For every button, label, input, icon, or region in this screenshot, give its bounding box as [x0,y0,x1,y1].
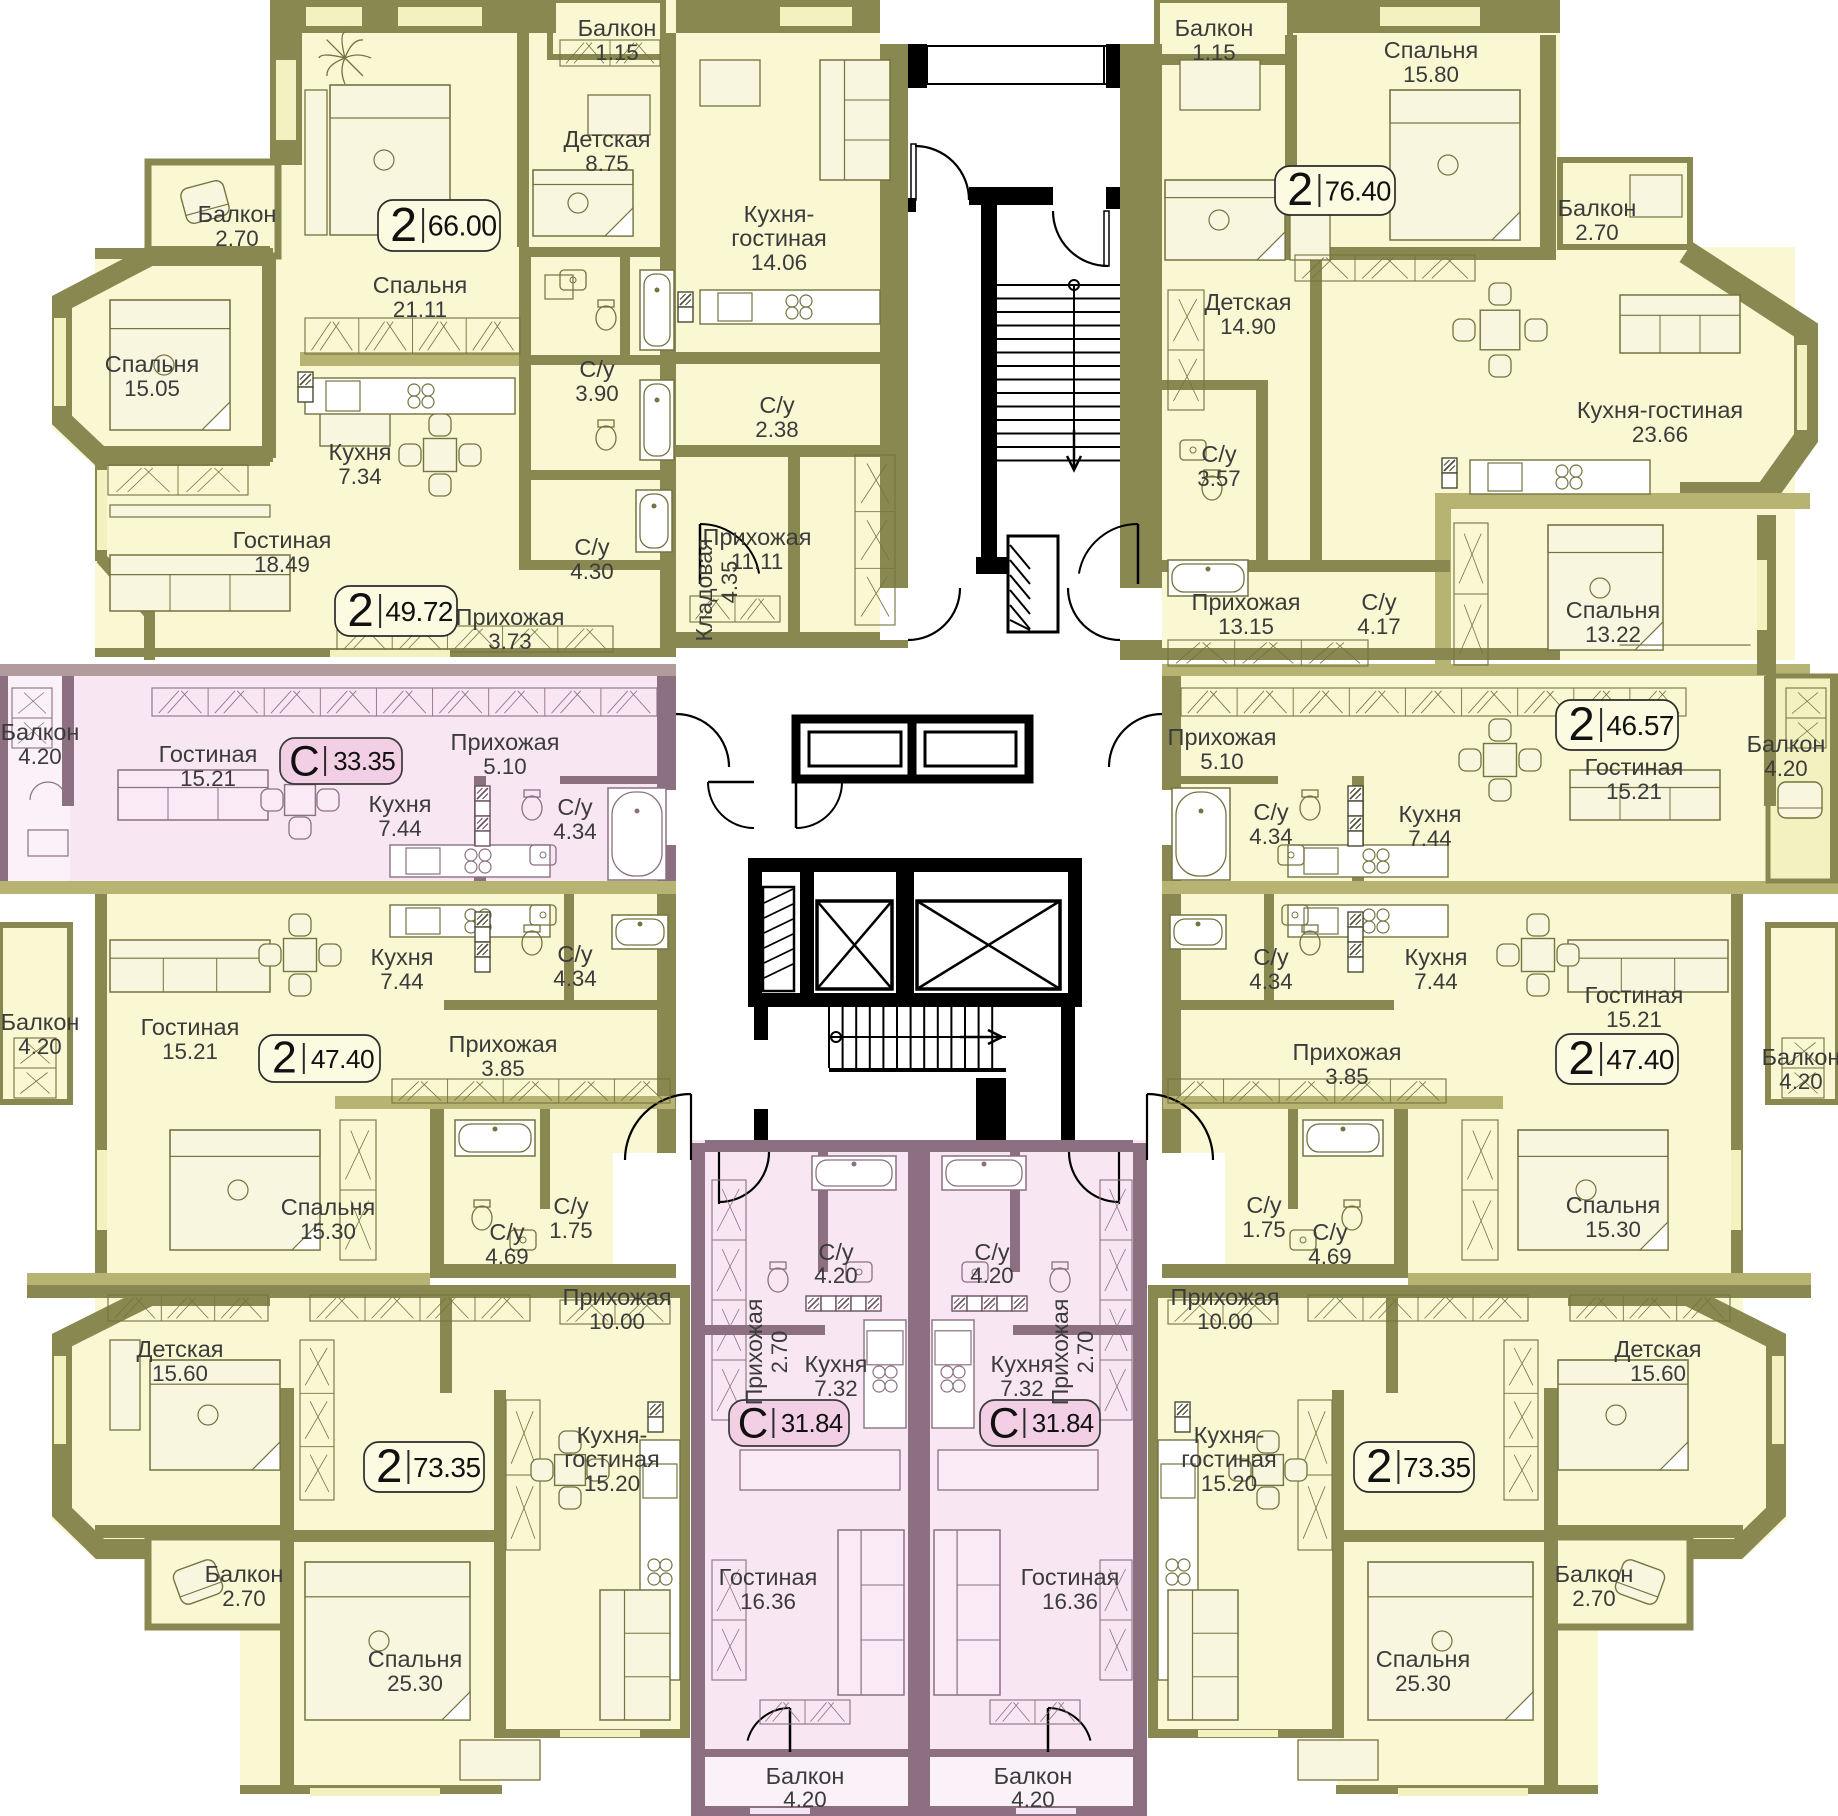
svg-text:Балкон: Балкон [1,719,80,745]
svg-text:3.73: 3.73 [488,629,531,654]
svg-text:Балкон: Балкон [1762,1044,1838,1070]
svg-text:Спальня: Спальня [368,1646,462,1672]
svg-text:Балкон: Балкон [578,15,657,41]
svg-text:С: С [289,738,320,785]
svg-text:16.36: 16.36 [740,1589,796,1614]
svg-text:47.40: 47.40 [1606,1044,1674,1075]
svg-text:21.11: 21.11 [393,297,447,322]
svg-text:Кухня: Кухня [1399,801,1462,827]
svg-text:15.60: 15.60 [1630,1361,1686,1386]
svg-text:25.30: 25.30 [387,1671,443,1696]
svg-text:13.15: 13.15 [1218,614,1274,639]
svg-text:Кухня: Кухня [329,439,392,465]
svg-text:15.20: 15.20 [1201,1471,1257,1496]
svg-text:Гостиная: Гостиная [1021,1564,1120,1590]
svg-text:гостиная: гостиная [564,1446,660,1472]
svg-text:Прихожая: Прихожая [456,604,565,630]
svg-text:8.75: 8.75 [585,151,628,176]
svg-text:Кладовая: Кладовая [691,538,717,641]
svg-text:Прихожая: Прихожая [563,1284,672,1310]
svg-text:С/у: С/у [1253,799,1289,825]
svg-text:Прихожая: Прихожая [1171,1284,1280,1310]
svg-text:4.34: 4.34 [1249,824,1292,849]
svg-text:Балкон: Балкон [1558,195,1637,221]
svg-text:Кухня: Кухня [1405,944,1468,970]
svg-text:С/у: С/у [1201,441,1237,467]
svg-text:7.32: 7.32 [814,1376,857,1401]
svg-text:13.22: 13.22 [1585,622,1641,647]
svg-text:4.30: 4.30 [570,559,613,584]
svg-text:Гостиная: Гостиная [159,741,258,767]
svg-text:Кухня: Кухня [991,1351,1054,1377]
svg-text:Гостиная: Гостиная [1585,754,1684,780]
svg-text:Балкон: Балкон [766,1763,845,1789]
svg-text:4.34: 4.34 [1249,969,1292,994]
svg-text:4.69: 4.69 [485,1244,528,1269]
svg-text:С/у: С/у [974,1239,1010,1265]
svg-text:76.40: 76.40 [1325,175,1391,206]
svg-text:1.15: 1.15 [1192,40,1235,65]
svg-text:С/у: С/у [553,1193,589,1219]
svg-text:С/у: С/у [759,392,795,418]
svg-text:4.20: 4.20 [783,1787,826,1812]
svg-text:10.00: 10.00 [589,1309,645,1334]
svg-text:Кухня: Кухня [369,791,432,817]
svg-text:С/у: С/у [1361,589,1397,615]
svg-text:3.85: 3.85 [1325,1064,1368,1089]
svg-text:Спальня: Спальня [281,1194,375,1220]
svg-text:Спальня: Спальня [1384,37,1478,63]
svg-text:2.70: 2.70 [1575,220,1618,245]
svg-text:15.30: 15.30 [1585,1217,1641,1242]
svg-text:7.44: 7.44 [380,969,423,994]
svg-text:2: 2 [390,198,417,252]
svg-text:Гостиная: Гостиная [719,1564,818,1590]
svg-text:15.21: 15.21 [1606,779,1662,804]
svg-text:Кухня-: Кухня- [744,201,815,227]
svg-text:5.10: 5.10 [1200,749,1243,774]
svg-text:С/у: С/у [557,941,593,967]
svg-text:4.20: 4.20 [1764,756,1807,781]
svg-text:С/у: С/у [557,794,593,820]
svg-text:66.00: 66.00 [428,211,497,243]
svg-text:Балкон: Балкон [198,201,277,227]
svg-text:Кухня: Кухня [371,944,434,970]
svg-text:Балкон: Балкон [1175,15,1254,41]
svg-text:4.69: 4.69 [1308,1244,1351,1269]
svg-text:Детская: Детская [1204,289,1291,315]
svg-text:4.34: 4.34 [553,819,596,844]
svg-text:31.84: 31.84 [781,1410,843,1438]
svg-text:15.20: 15.20 [584,1471,640,1496]
svg-text:Прихожая: Прихожая [451,729,560,755]
svg-text:С/у: С/у [574,534,610,560]
svg-text:С/у: С/у [1253,944,1289,970]
svg-text:Детская: Детская [563,126,650,152]
svg-text:гостиная: гостиная [731,225,827,251]
svg-text:Прихожая: Прихожая [703,524,812,550]
svg-text:С: С [989,1400,1020,1447]
svg-text:С: С [738,1400,769,1447]
svg-text:Прихожая: Прихожая [1293,1039,1402,1065]
svg-text:С/у: С/у [1246,1192,1282,1218]
svg-text:15.21: 15.21 [162,1039,218,1064]
svg-text:16.36: 16.36 [1042,1589,1098,1614]
svg-text:14.06: 14.06 [751,250,807,275]
svg-text:Кухня-: Кухня- [577,1422,648,1448]
svg-text:Кухня: Кухня [805,1351,868,1377]
svg-text:4.35: 4.35 [717,561,742,604]
svg-text:2.70: 2.70 [222,1586,265,1611]
svg-text:Спальня: Спальня [1376,1646,1470,1672]
svg-text:Спальня: Спальня [105,351,199,377]
svg-text:5.10: 5.10 [483,754,526,779]
svg-text:4.20: 4.20 [18,1034,61,1059]
svg-text:4.20: 4.20 [970,1263,1013,1288]
svg-text:Балкон: Балкон [994,1763,1073,1789]
svg-text:15.60: 15.60 [152,1361,208,1386]
svg-text:С/у: С/у [1312,1219,1348,1245]
svg-text:46.57: 46.57 [1606,710,1674,741]
svg-text:15.21: 15.21 [1606,1007,1662,1032]
svg-text:Балкон: Балкон [205,1561,284,1587]
svg-text:Прихожая: Прихожая [741,1299,767,1406]
svg-text:4.20: 4.20 [814,1263,857,1288]
svg-text:15.05: 15.05 [124,376,180,401]
svg-text:1.15: 1.15 [595,40,638,65]
svg-text:2.70: 2.70 [1073,1331,1098,1374]
svg-text:2.70: 2.70 [215,226,258,251]
svg-text:2.38: 2.38 [755,417,798,442]
svg-text:Прихожая: Прихожая [1192,589,1301,615]
svg-text:4.20: 4.20 [18,744,61,769]
svg-text:2.70: 2.70 [767,1331,792,1374]
svg-text:С/у: С/у [818,1239,854,1265]
svg-text:Детская: Детская [1614,1336,1701,1362]
svg-text:Балкон: Балкон [1747,731,1826,757]
svg-text:С/у: С/у [579,356,615,382]
svg-text:2: 2 [1568,1032,1594,1085]
svg-text:Спальня: Спальня [1566,1192,1660,1218]
svg-text:7.44: 7.44 [378,816,421,841]
svg-text:Балкон: Балкон [1555,1561,1634,1587]
svg-text:73.35: 73.35 [413,1452,481,1483]
svg-text:1.75: 1.75 [549,1218,592,1243]
svg-text:4.20: 4.20 [1011,1787,1054,1812]
svg-text:7.34: 7.34 [338,464,381,489]
svg-text:Гостиная: Гостиная [1585,982,1684,1008]
svg-text:18.49: 18.49 [254,552,310,577]
svg-text:Прихожая: Прихожая [1168,724,1277,750]
svg-text:14.90: 14.90 [1220,314,1276,339]
svg-text:15.30: 15.30 [300,1219,356,1244]
svg-text:3.90: 3.90 [575,381,618,406]
svg-text:Кухня-: Кухня- [1194,1422,1265,1448]
svg-text:47.40: 47.40 [311,1044,374,1074]
svg-text:2: 2 [347,584,373,637]
svg-text:33.35: 33.35 [333,748,395,776]
svg-text:15.80: 15.80 [1403,62,1459,87]
svg-text:Кухня-гостиная: Кухня-гостиная [1577,397,1743,423]
svg-text:73.35: 73.35 [1403,1452,1471,1483]
svg-text:23.66: 23.66 [1632,422,1688,447]
svg-text:2: 2 [272,1034,297,1083]
svg-text:2.70: 2.70 [1572,1586,1615,1611]
svg-text:1.75: 1.75 [1242,1217,1285,1242]
svg-text:Балкон: Балкон [1,1009,80,1035]
svg-text:2: 2 [1287,163,1313,215]
svg-text:31.84: 31.84 [1032,1410,1094,1438]
svg-text:Прихожая: Прихожая [449,1031,558,1057]
svg-text:2: 2 [376,1440,402,1493]
svg-text:2: 2 [1568,698,1594,751]
svg-text:7.44: 7.44 [1414,969,1457,994]
svg-text:15.21: 15.21 [180,766,236,791]
svg-text:25.30: 25.30 [1395,1671,1451,1696]
svg-text:3.57: 3.57 [1197,466,1240,491]
svg-text:10.00: 10.00 [1197,1309,1253,1334]
svg-text:Спальня: Спальня [1566,597,1660,623]
svg-text:7.32: 7.32 [1000,1376,1043,1401]
svg-text:7.44: 7.44 [1408,826,1451,851]
svg-text:Гостиная: Гостиная [233,527,332,553]
svg-text:С/у: С/у [489,1219,525,1245]
svg-text:Детская: Детская [136,1336,223,1362]
svg-text:Спальня: Спальня [373,272,467,298]
svg-text:3.85: 3.85 [481,1056,524,1081]
svg-text:гостиная: гостиная [1181,1446,1277,1472]
svg-text:2: 2 [1366,1440,1392,1493]
svg-text:4.20: 4.20 [1779,1069,1822,1094]
svg-text:4.17: 4.17 [1357,614,1400,639]
svg-text:4.34: 4.34 [553,966,596,991]
svg-text:49.72: 49.72 [385,596,453,627]
svg-text:Гостиная: Гостиная [141,1014,240,1040]
